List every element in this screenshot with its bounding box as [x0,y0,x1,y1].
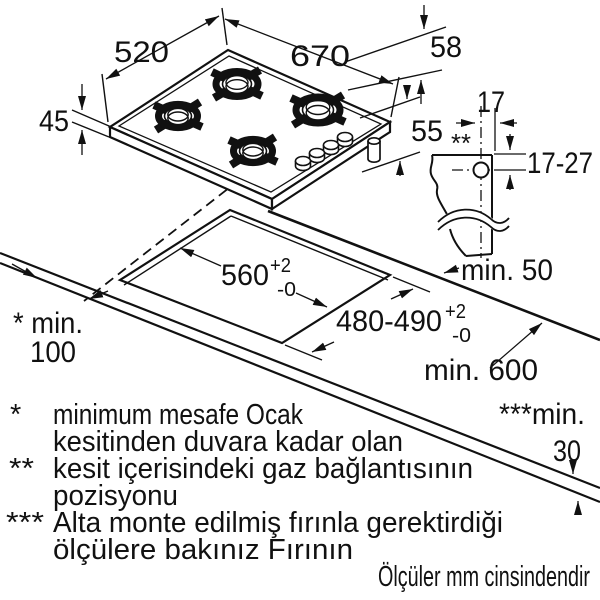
cutout-depth-label: 480-490 [336,305,442,338]
burner-front [229,137,277,165]
dim-arrow [391,289,413,299]
dim-45: 45 [39,84,109,155]
footnote-1-marker: * [10,399,21,431]
dim-side-clearance: * min. 100 [12,264,108,369]
under-clearance-marker: ***min. [499,398,585,431]
dim-arrow [444,268,459,273]
footnote-2-marker: ** [9,453,34,485]
cutout-width-label: 560 [221,259,269,292]
control-knob [324,141,339,155]
installation-diagram: 560 +2 -0 480-490 +2 -0 min. 600 min. 50… [0,0,600,600]
dim-58: 58 [345,5,462,104]
dim-under-clearance: ***min. 30 [499,398,585,514]
cutout-width-tol-plus: +2 [270,255,291,277]
hob-depth-label: 520 [114,36,169,69]
gas-section-detail: 17 ** 17-27 [431,86,593,258]
rear-clearance-label: min. 50 [461,254,553,287]
break-mask [438,214,509,227]
dim-17: 17 [456,86,517,123]
burner-rim [226,80,248,94]
footnote-3-line2: ölçülere bakınız Fırının [53,534,353,566]
section-left-edge-lower [450,229,466,256]
dim-arrow [180,248,221,266]
gas-offset-side-label: 17 [477,86,505,119]
cutout-width-tol-minus: -0 [277,279,296,301]
gas-marker-label: ** [451,128,471,158]
dim-rear-clearance: min. 50 [444,254,553,287]
burner-rim [168,112,188,125]
dim-reference [348,70,442,90]
hob-drawing [110,50,390,209]
gas-connection-point [474,163,489,178]
hob-height-supports-label: 58 [430,31,462,64]
hob-width-label: 670 [290,40,350,73]
dim-cutout-depth: 480-490 +2 -0 [285,277,471,360]
burner-back [212,70,262,98]
dim-17-27: 17-27 [494,134,593,190]
control-knob [338,133,353,147]
gas-inlet-pipe [368,138,380,162]
cutout-inner-edge-left [124,216,231,285]
cutout-depth-tol-plus: +2 [445,301,466,323]
side-clearance-value: 100 [30,336,76,369]
control-knob [310,149,325,163]
dim-arrow [296,293,327,307]
gas-offset-depth-label: 17-27 [527,147,593,180]
dim-arrow [312,342,334,352]
under-clearance-value: 30 [553,435,581,468]
units-note: Ölçüler mm cinsindendir [378,561,590,593]
dim-extension [102,74,108,122]
dim-cutout-width: 560 +2 -0 [180,248,327,307]
hob-height-left-label: 45 [39,105,69,138]
cutout-depth-tol-minus: -0 [452,325,471,347]
burner-rim [243,147,263,160]
section-left-edge-upper [431,155,448,216]
burner-left [154,102,202,130]
worktop-depth-label: min. 600 [424,354,538,387]
burner-right [291,95,345,125]
footnote-3-marker: *** [6,507,44,539]
hob-height-below-label: 55 [411,115,443,148]
dim-extension [222,8,227,45]
dim-extension [285,345,322,360]
control-knob [296,157,311,171]
